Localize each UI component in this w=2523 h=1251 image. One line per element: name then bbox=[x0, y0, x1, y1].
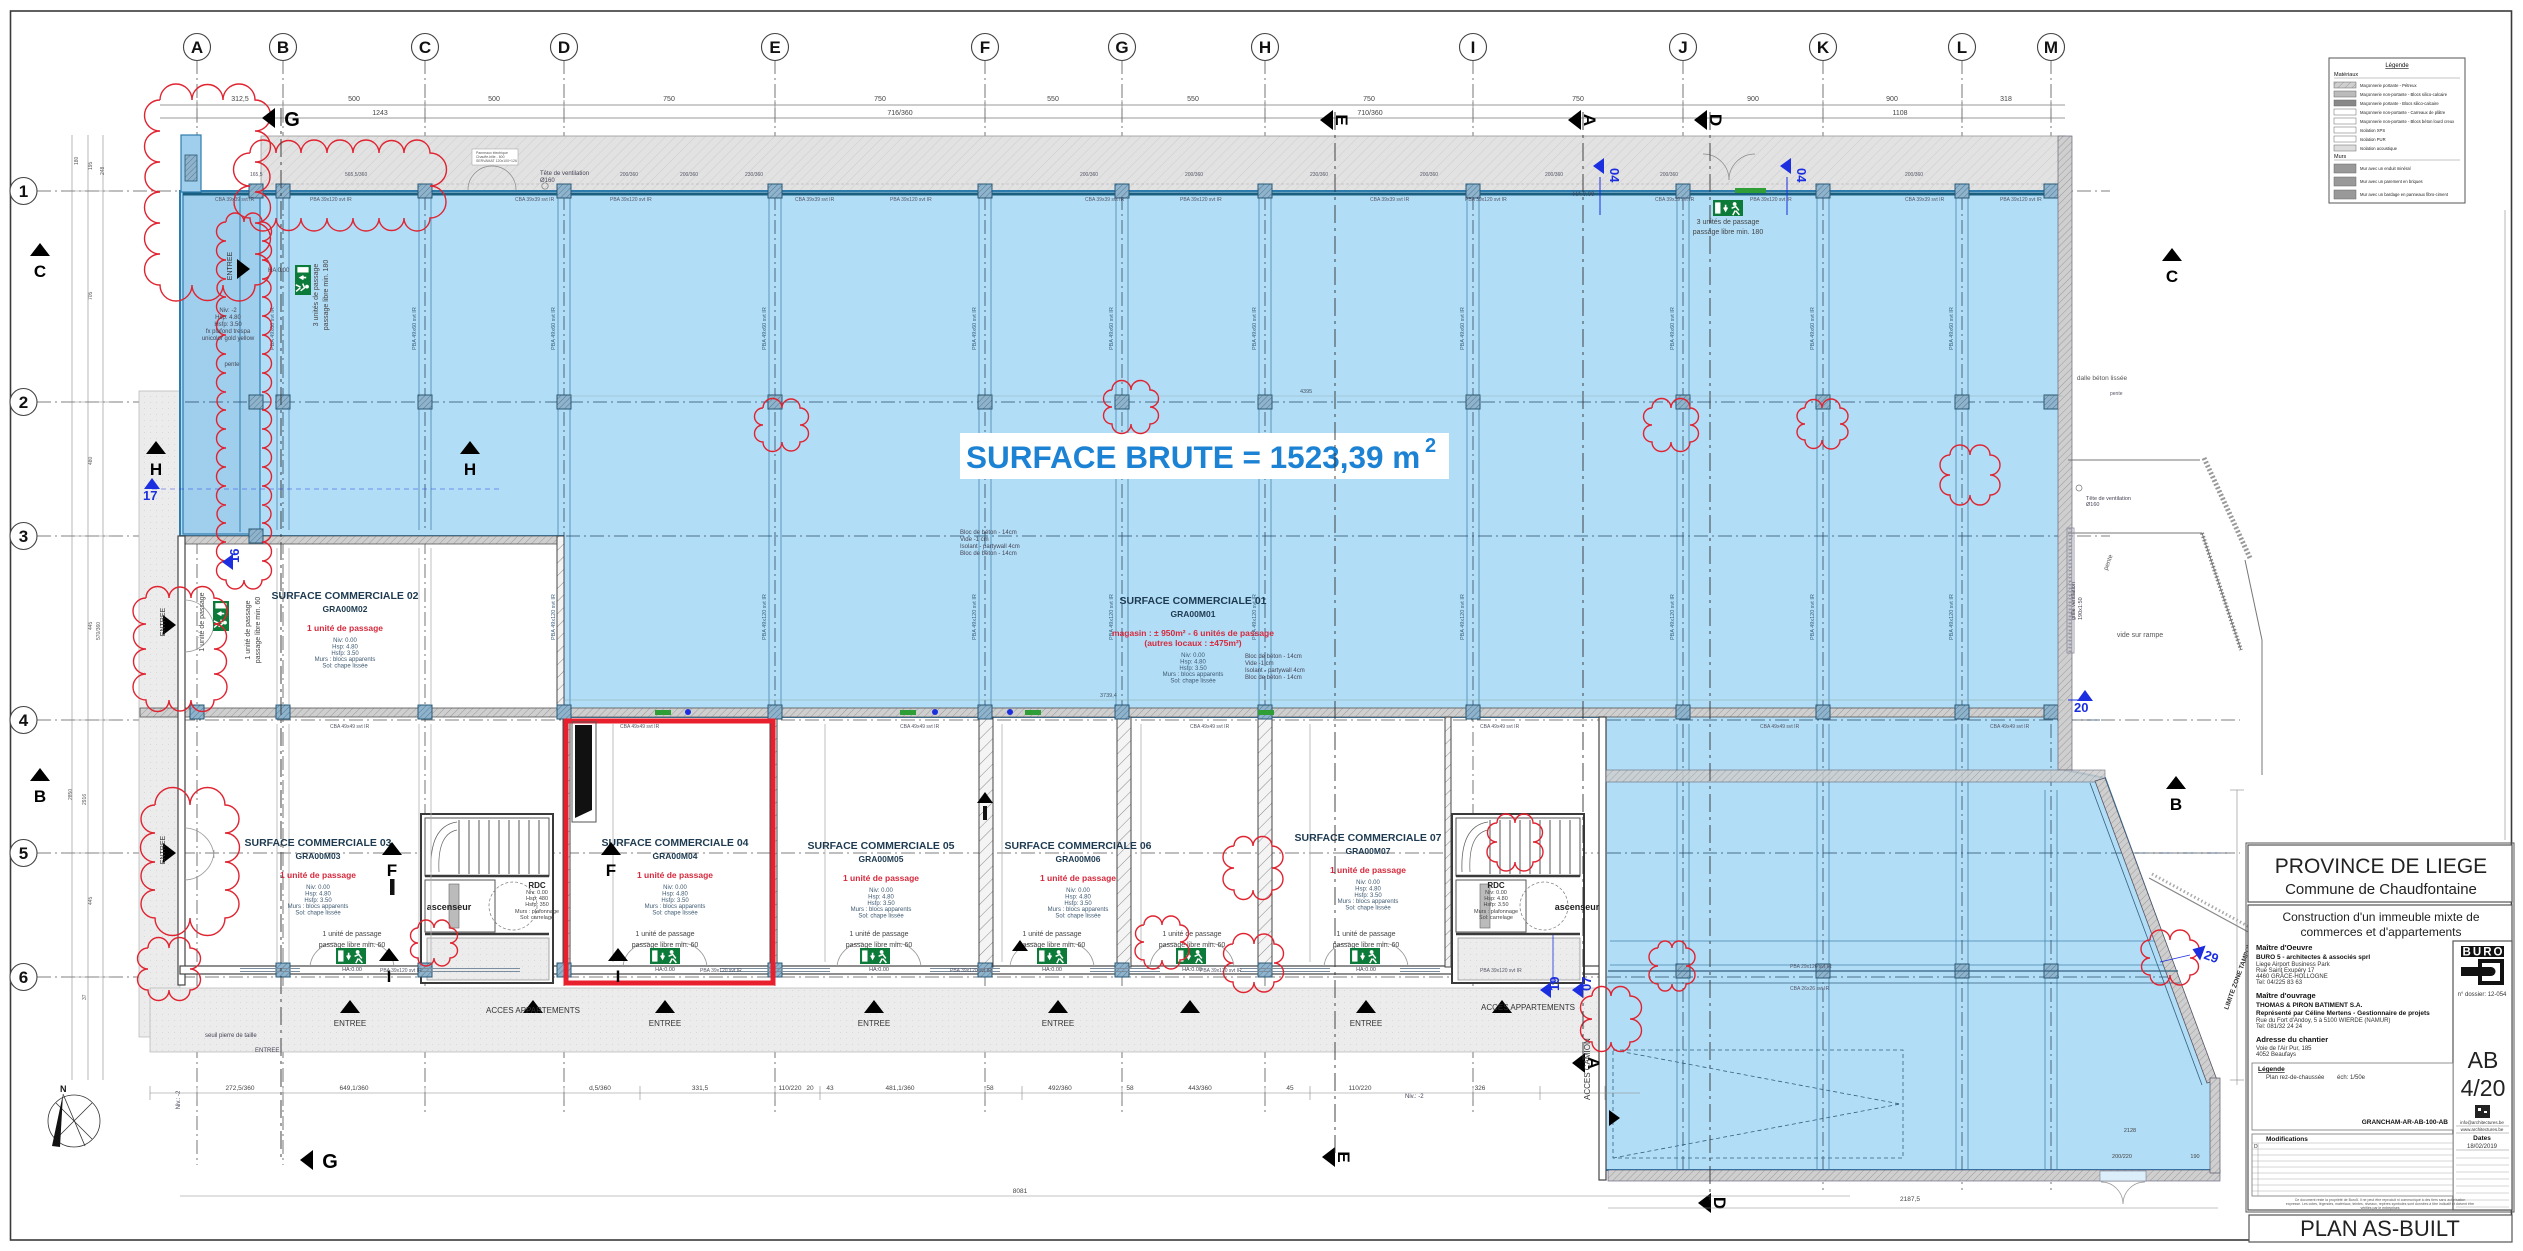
svg-text:PBA 49x120 svt IR: PBA 49x120 svt IR bbox=[972, 594, 978, 640]
svg-text:C: C bbox=[419, 38, 431, 57]
svg-text:Maître d'ouvrage: Maître d'ouvrage bbox=[2256, 991, 2316, 1000]
svg-text:200/360: 200/360 bbox=[1420, 172, 1438, 178]
svg-text:ENTREE: ENTREE bbox=[1350, 1019, 1382, 1028]
svg-text:HA 0.00: HA 0.00 bbox=[1573, 192, 1595, 198]
svg-text:195: 195 bbox=[88, 161, 94, 170]
svg-text:1: 1 bbox=[19, 182, 28, 201]
svg-text:230/360: 230/360 bbox=[1310, 172, 1328, 178]
svg-text:SURFACE COMMERCIALE 05: SURFACE COMMERCIALE 05 bbox=[807, 840, 954, 852]
svg-text:HA 0.00: HA 0.00 bbox=[268, 268, 290, 274]
svg-text:ENTREE: ENTREE bbox=[858, 1019, 890, 1028]
svg-text:Commune de Chaudfontaine: Commune de Chaudfontaine bbox=[2285, 881, 2477, 898]
svg-text:331,5: 331,5 bbox=[692, 1085, 709, 1092]
svg-text:Tel: 081/32 24 24: Tel: 081/32 24 24 bbox=[2256, 1024, 2303, 1030]
svg-text:PBA 49x120 svt IR: PBA 49x120 svt IR bbox=[1670, 594, 1676, 640]
svg-text:E: E bbox=[1334, 1151, 1353, 1162]
svg-text:Bloc de béton - 14cm: Bloc de béton - 14cm bbox=[1245, 654, 1302, 660]
svg-text:PBA 39x120 svt IR: PBA 39x120 svt IR bbox=[950, 968, 992, 974]
svg-text:750: 750 bbox=[874, 96, 886, 103]
svg-text:vérifiés par le entreprises: vérifiés par le entreprises bbox=[2360, 1206, 2399, 1210]
svg-text:19: 19 bbox=[1547, 977, 1562, 991]
svg-text:1 unité de passage: 1 unité de passage bbox=[322, 931, 381, 938]
svg-text:GRA00M06: GRA00M06 bbox=[1056, 854, 1101, 864]
svg-text:Niv: 0.00: Niv: 0.00 bbox=[333, 638, 357, 644]
svg-text:H: H bbox=[150, 460, 162, 479]
svg-text:seuil pierre de taille: seuil pierre de taille bbox=[205, 1033, 257, 1039]
svg-text:Mur avec un parement en brique: Mur avec un parement en briques bbox=[2360, 179, 2423, 184]
svg-text:716/360: 716/360 bbox=[887, 110, 912, 117]
svg-text:Sol: chape lissée: Sol: chape lissée bbox=[322, 664, 368, 670]
svg-text:dalle béton lissée: dalle béton lissée bbox=[2077, 375, 2128, 382]
svg-text:CBA 39x39 svt IR: CBA 39x39 svt IR bbox=[1370, 197, 1410, 203]
svg-text:Hsfp: 3.50: Hsfp: 3.50 bbox=[1179, 666, 1207, 672]
svg-text:200/360: 200/360 bbox=[680, 172, 698, 178]
svg-text:passage libre min. 60: passage libre min. 60 bbox=[255, 597, 262, 664]
svg-text:PBA 39x120 svt IR: PBA 39x120 svt IR bbox=[380, 968, 422, 974]
svg-text:16: 16 bbox=[227, 549, 242, 563]
svg-text:GRA00M07: GRA00M07 bbox=[1346, 846, 1391, 856]
svg-text:Hsp: 4.80: Hsp: 4.80 bbox=[1180, 659, 1206, 665]
svg-text:2850: 2850 bbox=[68, 789, 74, 800]
svg-text:200/360: 200/360 bbox=[1185, 172, 1203, 178]
svg-text:GRA00M01: GRA00M01 bbox=[1171, 609, 1216, 619]
svg-text:passage libre min. 60: passage libre min. 60 bbox=[1159, 942, 1226, 949]
svg-text:Maçonnerie non-portante - Bloc: Maçonnerie non-portante - Blocs béton lo… bbox=[2360, 119, 2455, 124]
svg-text:Vide -1 cm: Vide -1 cm bbox=[960, 537, 989, 543]
svg-text:commerces et d'appartements: commerces et d'appartements bbox=[2300, 925, 2461, 939]
svg-text:PBA 39x120 svt IR: PBA 39x120 svt IR bbox=[890, 197, 932, 203]
svg-text:37: 37 bbox=[82, 994, 88, 1000]
svg-text:750: 750 bbox=[663, 96, 675, 103]
svg-text:Murs : blocs apparents: Murs : blocs apparents bbox=[645, 904, 706, 910]
svg-text:n° dossier: 12-054: n° dossier: 12-054 bbox=[2458, 992, 2507, 998]
svg-text:D: D bbox=[558, 38, 570, 57]
svg-text:C: C bbox=[34, 262, 46, 281]
svg-text:PBA 39x120 svt IR: PBA 39x120 svt IR bbox=[310, 197, 352, 203]
svg-text:ACCES APPARTEMENTS: ACCES APPARTEMENTS bbox=[486, 1006, 580, 1015]
svg-text:PROVINCE DE LIEGE: PROVINCE DE LIEGE bbox=[2275, 855, 2487, 878]
svg-text:CBA 39x39 svt IR: CBA 39x39 svt IR bbox=[1655, 197, 1695, 203]
svg-text:ENTREE: ENTREE bbox=[255, 1048, 279, 1054]
svg-text:Isolant - partywall 4cm: Isolant - partywall 4cm bbox=[960, 544, 1020, 550]
svg-text:d,5/360: d,5/360 bbox=[589, 1085, 611, 1092]
svg-text:20: 20 bbox=[806, 1085, 814, 1092]
svg-text:750: 750 bbox=[1572, 96, 1584, 103]
svg-text:ENTREE: ENTREE bbox=[160, 607, 167, 636]
svg-text:passage libre min. 60: passage libre min. 60 bbox=[1019, 942, 1086, 949]
svg-text:BURO 5 - architectes & associé: BURO 5 - architectes & associés sprl bbox=[2256, 954, 2370, 961]
svg-text:Hsp: 4.80: Hsp: 4.80 bbox=[1065, 894, 1091, 900]
svg-text:3 unités de passage: 3 unités de passage bbox=[1697, 219, 1760, 226]
svg-text:4: 4 bbox=[19, 711, 29, 730]
svg-text:PBA 39x120 svt IR: PBA 39x120 svt IR bbox=[2000, 197, 2042, 203]
svg-text:pente: pente bbox=[224, 362, 240, 368]
svg-text:ENTREE: ENTREE bbox=[334, 1019, 366, 1028]
svg-text:M: M bbox=[2044, 38, 2058, 57]
svg-text:2187,5: 2187,5 bbox=[1900, 1196, 1920, 1203]
svg-text:PBA 49x60 svt IR: PBA 49x60 svt IR bbox=[972, 307, 978, 350]
svg-text:CBA 26x26 svt IR: CBA 26x26 svt IR bbox=[1790, 986, 1830, 992]
svg-text:PBA 49x120 svt IR: PBA 49x120 svt IR bbox=[1810, 594, 1816, 640]
svg-text:GRA00M02: GRA00M02 bbox=[323, 604, 368, 614]
svg-text:900: 900 bbox=[1886, 96, 1898, 103]
svg-text:Matériaux: Matériaux bbox=[2334, 72, 2358, 78]
svg-text:passage libre min. 60: passage libre min. 60 bbox=[846, 942, 913, 949]
svg-text:Maçonnerie portante - Blocs si: Maçonnerie portante - Blocs silico-calca… bbox=[2360, 101, 2439, 106]
svg-text:Hsp: 4.80: Hsp: 4.80 bbox=[215, 315, 241, 321]
svg-text:PBA 39x120 svt IR: PBA 39x120 svt IR bbox=[1200, 968, 1242, 974]
svg-text:SURFACE BRUTE = 1523,39 m: SURFACE BRUTE = 1523,39 m bbox=[966, 439, 1420, 475]
svg-text:Hsfp: 3.50: Hsfp: 3.50 bbox=[1354, 893, 1382, 899]
svg-text:Hsfp: 3.50: Hsfp: 3.50 bbox=[1483, 902, 1508, 908]
svg-text:D: D bbox=[1710, 1197, 1729, 1209]
svg-text:8081: 8081 bbox=[1013, 1188, 1028, 1195]
svg-text:Construction d'un immeuble mix: Construction d'un immeuble mixte de bbox=[2282, 910, 2479, 924]
svg-text:CBA 49x49 svt IR: CBA 49x49 svt IR bbox=[330, 724, 370, 730]
svg-text:SURFACE COMMERCIALE 06: SURFACE COMMERCIALE 06 bbox=[1004, 840, 1151, 852]
svg-text:Bloc de béton - 14cm: Bloc de béton - 14cm bbox=[1245, 675, 1302, 681]
svg-text:570/360: 570/360 bbox=[96, 622, 102, 640]
svg-text:550: 550 bbox=[1187, 96, 1199, 103]
svg-text:PBA 39x120 svt IR: PBA 39x120 svt IR bbox=[700, 968, 742, 974]
svg-text:PBA 49x120 svt IR: PBA 49x120 svt IR bbox=[1460, 594, 1466, 640]
svg-text:2: 2 bbox=[19, 393, 28, 412]
svg-text:PBA 49x120 svt IR: PBA 49x120 svt IR bbox=[551, 594, 557, 640]
svg-text:unicolor gold yellow: unicolor gold yellow bbox=[202, 336, 255, 342]
svg-text:G: G bbox=[322, 1151, 338, 1173]
svg-text:HA:0.00: HA:0.00 bbox=[1356, 967, 1376, 973]
svg-text:PLAN AS-BUILT: PLAN AS-BUILT bbox=[2300, 1216, 2460, 1241]
svg-text:326: 326 bbox=[1475, 1085, 1486, 1092]
svg-text:Maçonnerie non-portante - Carr: Maçonnerie non-portante - Carreaux de pl… bbox=[2360, 110, 2446, 115]
svg-text:180: 180 bbox=[74, 156, 80, 165]
svg-text:500: 500 bbox=[488, 96, 500, 103]
svg-text:45: 45 bbox=[1286, 1085, 1294, 1092]
svg-text:230/360: 230/360 bbox=[745, 172, 763, 178]
svg-text:3739,4: 3739,4 bbox=[1100, 693, 1117, 699]
svg-text:Adresse du chantier: Adresse du chantier bbox=[2256, 1035, 2328, 1044]
svg-text:H: H bbox=[1259, 38, 1271, 57]
svg-text:HA:0.00: HA:0.00 bbox=[869, 967, 889, 973]
svg-text:1 unité de passage: 1 unité de passage bbox=[1162, 931, 1221, 938]
svg-text:PBA 49x60 svt IR: PBA 49x60 svt IR bbox=[1460, 307, 1466, 350]
svg-text:4395: 4395 bbox=[1300, 389, 1312, 395]
svg-text:110/220: 110/220 bbox=[1348, 1085, 1371, 1092]
svg-text:GRA00M03: GRA00M03 bbox=[296, 851, 341, 861]
svg-text:ENTREE: ENTREE bbox=[227, 251, 234, 280]
svg-text:PBA 39x120 svt IR: PBA 39x120 svt IR bbox=[610, 197, 652, 203]
svg-text:passage libre min. 60: passage libre min. 60 bbox=[1333, 942, 1400, 949]
svg-text:550: 550 bbox=[1047, 96, 1059, 103]
svg-text:ACCES CAMION: ACCES CAMION bbox=[1583, 1038, 1592, 1100]
svg-text:PBA 49x60 svt IR: PBA 49x60 svt IR bbox=[1670, 307, 1676, 350]
svg-text:pente: pente bbox=[2110, 391, 2123, 397]
svg-text:Sol: chape lissée: Sol: chape lissée bbox=[1345, 906, 1391, 912]
svg-text:Plan rez-de-chaussée: Plan rez-de-chaussée bbox=[2266, 1075, 2325, 1081]
svg-text:Murs : blocs apparents: Murs : blocs apparents bbox=[288, 904, 349, 910]
svg-text:ENTREE: ENTREE bbox=[1042, 1019, 1074, 1028]
svg-text:PBA 49x120 svt IR: PBA 49x120 svt IR bbox=[762, 594, 768, 640]
svg-text:565,5/360: 565,5/360 bbox=[345, 172, 367, 178]
svg-text:Hsp: 4.80: Hsp: 4.80 bbox=[305, 891, 331, 897]
svg-text:Niv: 0.00: Niv: 0.00 bbox=[1181, 653, 1205, 659]
svg-text:CBA 49x49 svt IR: CBA 49x49 svt IR bbox=[1480, 724, 1520, 730]
svg-text:1 unité de passage: 1 unité de passage bbox=[1040, 873, 1116, 883]
svg-text:passage libre min. 60: passage libre min. 60 bbox=[632, 942, 699, 949]
svg-text:SURFACE COMMERCIALE 07: SURFACE COMMERCIALE 07 bbox=[1294, 832, 1441, 844]
svg-text:PBA 39x120 svt IR: PBA 39x120 svt IR bbox=[1465, 197, 1507, 203]
svg-text:58: 58 bbox=[1126, 1085, 1134, 1092]
svg-text:GRA00M05: GRA00M05 bbox=[859, 854, 904, 864]
svg-text:info@architectures.be: info@architectures.be bbox=[2460, 1120, 2504, 1125]
svg-text:3 unités de passage: 3 unités de passage bbox=[313, 264, 320, 327]
svg-text:318: 318 bbox=[2000, 96, 2012, 103]
svg-text:Niv: -2: Niv: -2 bbox=[219, 308, 237, 314]
svg-text:Hsfp: 3.50: Hsfp: 3.50 bbox=[304, 898, 332, 904]
svg-text:Murs : blocs apparents: Murs : blocs apparents bbox=[1163, 672, 1224, 678]
svg-text:1 unité de passage: 1 unité de passage bbox=[637, 870, 713, 880]
svg-text:Isolant - partywall 4cm: Isolant - partywall 4cm bbox=[1245, 668, 1305, 674]
svg-text:G: G bbox=[284, 109, 300, 131]
svg-text:200/360: 200/360 bbox=[1905, 172, 1923, 178]
svg-text:B: B bbox=[2170, 795, 2182, 814]
svg-text:SURFACE COMMERCIALE 01: SURFACE COMMERCIALE 01 bbox=[1119, 595, 1266, 607]
svg-text:Hsfp: 3.50: Hsfp: 3.50 bbox=[1064, 901, 1092, 907]
svg-text:2: 2 bbox=[1425, 435, 1436, 457]
svg-text:ascenseur: ascenseur bbox=[1555, 902, 1600, 912]
svg-text:480: 480 bbox=[88, 456, 94, 465]
svg-text:Maître d'Oeuvre: Maître d'Oeuvre bbox=[2256, 943, 2312, 952]
svg-text:04: 04 bbox=[1607, 168, 1622, 183]
svg-text:www.architectures.be: www.architectures.be bbox=[2461, 1127, 2504, 1132]
svg-text:passage libre min. 60: passage libre min. 60 bbox=[319, 942, 386, 949]
svg-text:705: 705 bbox=[88, 291, 94, 300]
svg-text:4460 GRÂCE-HOLLOGNE: 4460 GRÂCE-HOLLOGNE bbox=[2256, 973, 2328, 980]
svg-text:HA:0.00: HA:0.00 bbox=[655, 967, 675, 973]
svg-text:07: 07 bbox=[1579, 977, 1594, 991]
svg-text:Représenté par Céline Mertens: Représenté par Céline Mertens - Gestionn… bbox=[2256, 1010, 2430, 1017]
svg-text:Niv: 0.00: Niv: 0.00 bbox=[663, 885, 687, 891]
svg-text:ENTREE: ENTREE bbox=[649, 1019, 681, 1028]
svg-text:PBA 49x60 svt IR: PBA 49x60 svt IR bbox=[1252, 307, 1258, 350]
svg-text:1 unité de passage: 1 unité de passage bbox=[280, 870, 356, 880]
svg-text:04: 04 bbox=[1794, 168, 1809, 183]
svg-text:Niv: 0.00: Niv: 0.00 bbox=[869, 888, 893, 894]
svg-text:I: I bbox=[616, 967, 621, 986]
svg-text:1243: 1243 bbox=[372, 110, 388, 117]
svg-text:750: 750 bbox=[1363, 96, 1375, 103]
svg-text:Ø160: Ø160 bbox=[2086, 502, 2099, 508]
svg-text:PBA 49x60 svt IR: PBA 49x60 svt IR bbox=[1810, 307, 1816, 350]
svg-text:PBA 49x60 svt IR: PBA 49x60 svt IR bbox=[551, 307, 557, 350]
svg-text:481,1/360: 481,1/360 bbox=[886, 1085, 915, 1092]
svg-text:1 unité de passage: 1 unité de passage bbox=[1336, 931, 1395, 938]
svg-text:58: 58 bbox=[986, 1085, 994, 1092]
svg-text:CBA 49x49 svt IR: CBA 49x49 svt IR bbox=[1990, 724, 2030, 730]
svg-text:200/360: 200/360 bbox=[1080, 172, 1098, 178]
svg-text:Murs : blocs apparents: Murs : blocs apparents bbox=[315, 657, 376, 663]
svg-text:Légende: Légende bbox=[2258, 1066, 2285, 1073]
svg-text:Sol: chape lissée: Sol: chape lissée bbox=[1170, 679, 1216, 685]
svg-text:PBA 49x60 svt IR: PBA 49x60 svt IR bbox=[412, 307, 418, 350]
svg-text:CBA 49x49 svt IR: CBA 49x49 svt IR bbox=[1190, 724, 1230, 730]
svg-text:CBA 39x39 svt IR: CBA 39x39 svt IR bbox=[1905, 197, 1945, 203]
svg-text:Murs : blocs apparents: Murs : blocs apparents bbox=[851, 907, 912, 913]
svg-text:Maçonnerie portante - Pétreux: Maçonnerie portante - Pétreux bbox=[2360, 83, 2417, 88]
svg-text:CBA 39x39 svt IR: CBA 39x39 svt IR bbox=[515, 197, 555, 203]
svg-text:HA:0.00: HA:0.00 bbox=[1182, 967, 1202, 973]
svg-text:CBA 49x49 svt IR: CBA 49x49 svt IR bbox=[900, 724, 940, 730]
svg-text:5: 5 bbox=[19, 844, 28, 863]
svg-text:Dates: Dates bbox=[2473, 1135, 2491, 1142]
svg-text:Hsfp: 3.50: Hsfp: 3.50 bbox=[867, 901, 895, 907]
svg-text:PBA 49x60 svt IR: PBA 49x60 svt IR bbox=[1109, 307, 1115, 350]
svg-text:Isolation acoustique: Isolation acoustique bbox=[2360, 146, 2398, 151]
svg-text:6: 6 bbox=[19, 968, 28, 987]
svg-text:Hsfp: 3.50: Hsfp: 3.50 bbox=[661, 898, 689, 904]
svg-text:Sol: carrelage: Sol: carrelage bbox=[520, 915, 554, 921]
svg-text:C: C bbox=[2166, 267, 2178, 286]
svg-text:PBA 49x120 svt IR: PBA 49x120 svt IR bbox=[1949, 594, 1955, 640]
svg-text:200/360: 200/360 bbox=[1545, 172, 1563, 178]
svg-text:Murs : blocs apparents: Murs : blocs apparents bbox=[1338, 899, 1399, 905]
svg-text:445: 445 bbox=[88, 896, 94, 905]
svg-text:Niv: 0.00: Niv: 0.00 bbox=[306, 885, 330, 891]
svg-text:Maçonnerie non-portante - Bloc: Maçonnerie non-portante - Blocs silico-c… bbox=[2360, 92, 2448, 97]
svg-text:Sol: carrelage: Sol: carrelage bbox=[1479, 915, 1513, 921]
svg-text:200/360: 200/360 bbox=[1660, 172, 1678, 178]
svg-text:312,5: 312,5 bbox=[231, 96, 249, 103]
svg-text:fx plafond trespa: fx plafond trespa bbox=[206, 329, 251, 335]
svg-text:500: 500 bbox=[348, 96, 360, 103]
svg-text:Isolation PUR: Isolation PUR bbox=[2360, 137, 2386, 142]
svg-text:443/360: 443/360 bbox=[1188, 1085, 1212, 1092]
svg-text:BURO: BURO bbox=[2463, 947, 2503, 959]
svg-text:1 unité de passage: 1 unité de passage bbox=[1330, 865, 1406, 875]
svg-text:Niv.: -2: Niv.: -2 bbox=[1405, 1094, 1424, 1100]
svg-text:Légende: Légende bbox=[2385, 63, 2409, 69]
svg-text:165,5: 165,5 bbox=[250, 172, 263, 178]
svg-text:RDC: RDC bbox=[1487, 881, 1505, 890]
svg-text:4/20: 4/20 bbox=[2461, 1075, 2506, 1101]
svg-text:passage libre min. 180: passage libre min. 180 bbox=[1693, 229, 1764, 236]
svg-text:2916: 2916 bbox=[82, 794, 88, 805]
svg-text:190x1:50: 190x1:50 bbox=[2078, 597, 2084, 620]
svg-text:GRANCHAM-AR-AB-100-AB: GRANCHAM-AR-AB-100-AB bbox=[2362, 1119, 2449, 1126]
svg-text:THOMAS & PIRON BATIMENT S.A.: THOMAS & PIRON BATIMENT S.A. bbox=[2256, 1002, 2363, 1009]
svg-text:1 unité de passage: 1 unité de passage bbox=[849, 931, 908, 938]
svg-text:PBA 49x60 svt IR: PBA 49x60 svt IR bbox=[762, 307, 768, 350]
svg-text:passage libre min. 180: passage libre min. 180 bbox=[323, 260, 330, 331]
svg-text:43: 43 bbox=[826, 1085, 834, 1092]
svg-text:CBA 39x39 svt IR: CBA 39x39 svt IR bbox=[795, 197, 835, 203]
svg-text:B: B bbox=[277, 38, 289, 57]
svg-text:F: F bbox=[387, 861, 397, 880]
svg-text:vide sur rampe: vide sur rampe bbox=[2117, 632, 2163, 639]
svg-text:Hsfp: 3.50: Hsfp: 3.50 bbox=[331, 651, 359, 657]
svg-text:1 unité de passage: 1 unité de passage bbox=[245, 600, 252, 659]
svg-text:GRA00M04: GRA00M04 bbox=[653, 851, 698, 861]
svg-text:Sol: chape lissée: Sol: chape lissée bbox=[652, 911, 698, 917]
svg-text:D: D bbox=[1706, 114, 1725, 126]
svg-text:Niv: 0.00: Niv: 0.00 bbox=[1356, 880, 1380, 886]
svg-text:CBA 39x39 svt IR: CBA 39x39 svt IR bbox=[215, 197, 255, 203]
svg-text:L: L bbox=[1957, 38, 1967, 57]
svg-text:G: G bbox=[1115, 38, 1128, 57]
svg-text:1 unité de passage: 1 unité de passage bbox=[199, 592, 206, 651]
svg-text:17: 17 bbox=[143, 488, 157, 503]
svg-text:RDC: RDC bbox=[528, 881, 546, 890]
svg-text:Bloc de béton - 14cm: Bloc de béton - 14cm bbox=[960, 530, 1017, 536]
svg-text:200/360: 200/360 bbox=[620, 172, 638, 178]
svg-text:1 unité de passage: 1 unité de passage bbox=[635, 931, 694, 938]
svg-text:1108: 1108 bbox=[1892, 110, 1907, 117]
svg-text:Hsp: 4.80: Hsp: 4.80 bbox=[868, 894, 894, 900]
svg-text:magasin : ± 950m² - 6 unités d: magasin : ± 950m² - 6 unités de passage bbox=[1112, 628, 1274, 638]
svg-text:445: 445 bbox=[88, 621, 94, 630]
svg-text:Hsfp: 350: Hsfp: 350 bbox=[525, 902, 549, 908]
svg-text:Sol: chape lissée: Sol: chape lissée bbox=[295, 911, 341, 917]
svg-text:F: F bbox=[606, 861, 616, 880]
svg-text:ENTREE: ENTREE bbox=[160, 835, 167, 864]
svg-text:N: N bbox=[60, 1084, 67, 1094]
svg-text:710/360: 710/360 bbox=[1357, 110, 1382, 117]
svg-text:A: A bbox=[191, 38, 203, 57]
svg-text:SURFACE COMMERCIALE 02: SURFACE COMMERCIALE 02 bbox=[271, 590, 418, 602]
svg-text:900: 900 bbox=[1747, 96, 1759, 103]
svg-text:CBA 49x49 svt IR: CBA 49x49 svt IR bbox=[1760, 724, 1800, 730]
svg-text:190: 190 bbox=[2190, 1154, 2199, 1160]
svg-text:SURFACE COMMERCIALE 04: SURFACE COMMERCIALE 04 bbox=[601, 837, 748, 849]
svg-text:grille ventilation: grille ventilation bbox=[2071, 582, 2077, 620]
svg-text:Tête de ventilation: Tête de ventilation bbox=[540, 171, 589, 177]
svg-text:1 unité de passage: 1 unité de passage bbox=[843, 873, 919, 883]
svg-text:1 unité de passage: 1 unité de passage bbox=[307, 623, 383, 633]
svg-text:J: J bbox=[1678, 38, 1687, 57]
svg-text:SURFACE COMMERCIALE 03: SURFACE COMMERCIALE 03 bbox=[244, 837, 391, 849]
svg-text:PBA 39x120 svt IR: PBA 39x120 svt IR bbox=[1180, 197, 1222, 203]
svg-text:H: H bbox=[464, 460, 476, 479]
svg-text:SERVAMAT 120x100+126: SERVAMAT 120x100+126 bbox=[476, 159, 517, 163]
svg-text:Murs: Murs bbox=[2334, 154, 2346, 160]
svg-text:CBA 39x39 svt IR: CBA 39x39 svt IR bbox=[1085, 197, 1125, 203]
svg-text:Tel: 04/225 83 63: Tel: 04/225 83 63 bbox=[2256, 980, 2303, 986]
svg-text:Mur avec un enduit minéral: Mur avec un enduit minéral bbox=[2360, 166, 2411, 171]
svg-text:PBA 49x60 svt IR: PBA 49x60 svt IR bbox=[1949, 307, 1955, 350]
svg-text:HA:0.00: HA:0.00 bbox=[342, 967, 362, 973]
svg-text:272,5/360: 272,5/360 bbox=[226, 1085, 255, 1092]
svg-text:Bloc de béton - 14cm: Bloc de béton - 14cm bbox=[960, 551, 1017, 557]
svg-text:Ø160: Ø160 bbox=[540, 178, 555, 184]
svg-text:20: 20 bbox=[2074, 700, 2088, 715]
svg-text:Sol: chape lissée: Sol: chape lissée bbox=[1055, 914, 1101, 920]
svg-text:Vide -1 cm: Vide -1 cm bbox=[1245, 661, 1274, 667]
svg-text:Hsp: 4.80: Hsp: 4.80 bbox=[662, 891, 688, 897]
svg-text:F: F bbox=[980, 38, 990, 57]
svg-text:200/220: 200/220 bbox=[2112, 1154, 2132, 1160]
svg-text:ACCES APPARTEMENTS: ACCES APPARTEMENTS bbox=[1481, 1003, 1575, 1012]
svg-text:Mur avec un bardage en panneau: Mur avec un bardage en panneaux fibro-ci… bbox=[2360, 192, 2449, 197]
svg-text:18/02/2019: 18/02/2019 bbox=[2467, 1144, 2498, 1150]
svg-text:Hsp: 4.80: Hsp: 4.80 bbox=[332, 644, 358, 650]
svg-text:Hsp: 4.80: Hsp: 4.80 bbox=[1355, 886, 1381, 892]
svg-text:PBA 29x120 svt IR: PBA 29x120 svt IR bbox=[1790, 964, 1832, 970]
svg-text:ascenseur: ascenseur bbox=[427, 902, 472, 912]
svg-text:I: I bbox=[1471, 38, 1476, 57]
svg-text:E: E bbox=[769, 38, 780, 57]
svg-text:Murs : blocs apparents: Murs : blocs apparents bbox=[1048, 907, 1109, 913]
svg-text:Isolation XPS: Isolation XPS bbox=[2360, 128, 2385, 133]
